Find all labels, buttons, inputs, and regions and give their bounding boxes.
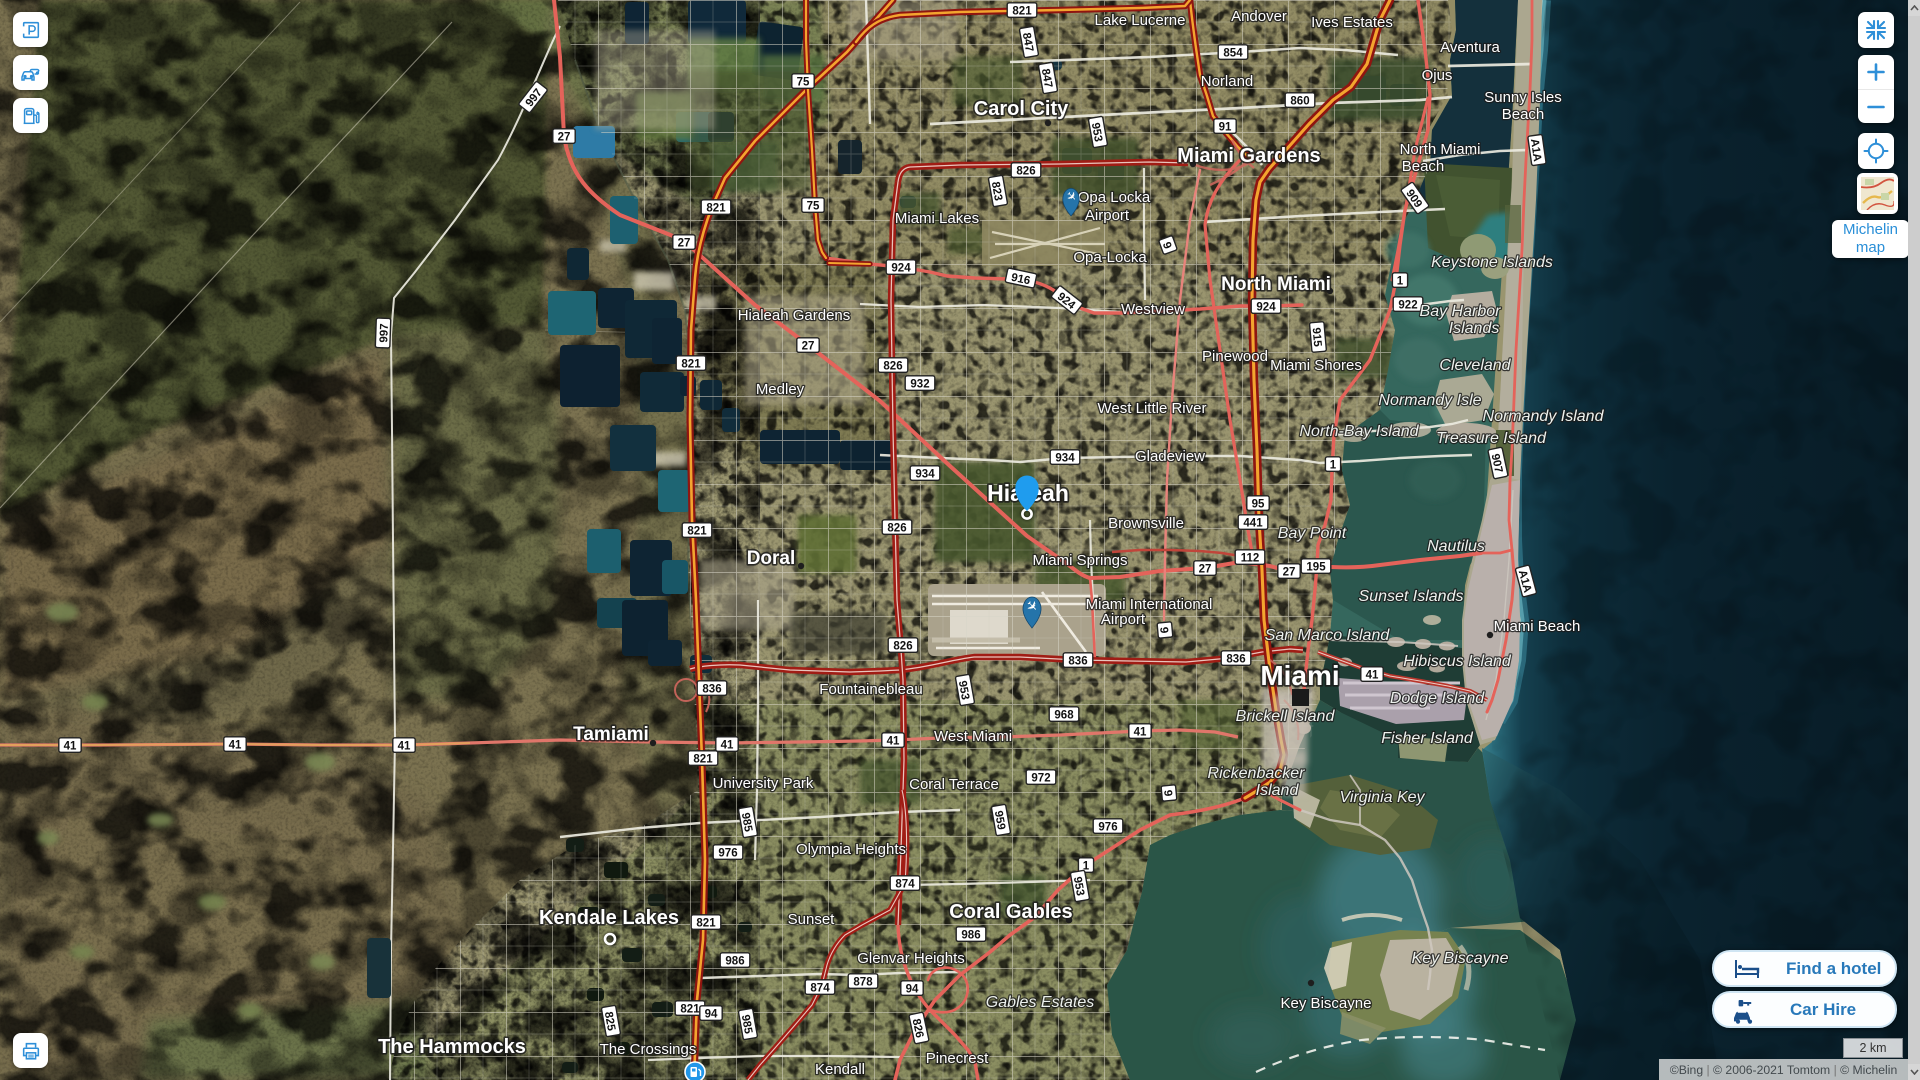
svg-text:41: 41 (721, 740, 734, 752)
svg-text:Fountainebleau: Fountainebleau (819, 681, 922, 698)
svg-text:Coral Gables: Coral Gables (949, 901, 1072, 923)
svg-text:Sunny Isles: Sunny Isles (1484, 89, 1562, 106)
svg-text:821: 821 (680, 1004, 700, 1016)
svg-text:95: 95 (1252, 499, 1265, 511)
svg-text:Gables Estates: Gables Estates (986, 994, 1095, 1011)
svg-text:821: 821 (706, 203, 726, 215)
svg-text:University Park: University Park (713, 775, 814, 792)
svg-text:924: 924 (891, 263, 911, 275)
svg-text:Sunset: Sunset (788, 911, 836, 928)
svg-text:West Miami: West Miami (934, 728, 1012, 745)
svg-text:Miami Shores: Miami Shores (1270, 357, 1362, 374)
svg-text:826: 826 (883, 361, 902, 373)
svg-text:Beach: Beach (1502, 106, 1545, 123)
svg-text:821: 821 (693, 754, 713, 766)
svg-text:Miami Lakes: Miami Lakes (895, 210, 979, 227)
svg-text:41: 41 (1366, 670, 1379, 682)
svg-text:Island: Island (1256, 782, 1300, 799)
svg-text:Tamiami: Tamiami (573, 724, 649, 745)
svg-text:Aventura: Aventura (1440, 39, 1500, 56)
svg-text:Medley: Medley (756, 381, 805, 398)
svg-text:976: 976 (1098, 822, 1117, 834)
svg-text:997: 997 (378, 323, 391, 343)
svg-text:976: 976 (718, 848, 737, 860)
svg-text:27: 27 (558, 132, 571, 144)
svg-text:Bay Harbor: Bay Harbor (1420, 303, 1502, 320)
svg-text:North Miami: North Miami (1221, 274, 1331, 295)
svg-text:968: 968 (1054, 710, 1074, 722)
svg-text:41: 41 (64, 741, 77, 753)
svg-text:Sunset Islands: Sunset Islands (1359, 588, 1464, 605)
svg-text:Lake Lucerne: Lake Lucerne (1095, 12, 1186, 29)
svg-text:27: 27 (678, 238, 691, 250)
svg-text:Normandy Island: Normandy Island (1483, 408, 1605, 425)
svg-text:Miami Beach: Miami Beach (1494, 618, 1581, 635)
svg-text:Miami Gardens: Miami Gardens (1177, 145, 1320, 167)
svg-text:Normandy Isle: Normandy Isle (1378, 392, 1481, 409)
svg-text:Treasure Island: Treasure Island (1436, 430, 1547, 447)
svg-text:27: 27 (1199, 564, 1212, 576)
svg-text:924: 924 (1256, 302, 1276, 314)
svg-text:41: 41 (229, 740, 242, 752)
svg-text:1: 1 (1330, 460, 1337, 472)
svg-text:Norland: Norland (1201, 73, 1254, 90)
svg-text:41: 41 (887, 736, 900, 748)
svg-text:Kendale Lakes: Kendale Lakes (539, 907, 679, 929)
svg-text:112: 112 (1241, 553, 1260, 565)
svg-text:San Marco Island: San Marco Island (1265, 627, 1391, 644)
svg-text:The Crossings: The Crossings (600, 1041, 697, 1058)
svg-text:27: 27 (1283, 567, 1296, 579)
svg-text:Olympia Heights: Olympia Heights (796, 841, 906, 858)
svg-text:Ojus: Ojus (1422, 67, 1453, 84)
svg-text:The Hammocks: The Hammocks (378, 1036, 526, 1058)
svg-text:94: 94 (705, 1009, 718, 1021)
svg-text:Gladeview: Gladeview (1135, 448, 1205, 465)
svg-text:Key Biscayne: Key Biscayne (1412, 950, 1509, 967)
svg-text:Nautilus: Nautilus (1427, 538, 1485, 555)
svg-text:North-Bay Island: North-Bay Island (1299, 423, 1419, 440)
svg-text:Pinewood: Pinewood (1202, 348, 1268, 365)
svg-text:9: 9 (1157, 626, 1170, 633)
svg-text:West Little River: West Little River (1098, 400, 1207, 417)
svg-text:Hialeah Gardens: Hialeah Gardens (738, 307, 851, 324)
svg-text:Cleveland: Cleveland (1439, 357, 1511, 374)
svg-text:Glenvar Heights: Glenvar Heights (857, 950, 965, 967)
svg-text:Miami Springs: Miami Springs (1032, 552, 1127, 569)
svg-text:Airport: Airport (1101, 611, 1146, 628)
svg-text:821: 821 (681, 359, 701, 371)
svg-text:826: 826 (1016, 166, 1035, 178)
svg-text:922: 922 (1398, 300, 1417, 312)
svg-text:826: 826 (893, 641, 912, 653)
svg-text:75: 75 (807, 201, 820, 213)
svg-text:Westview: Westview (1121, 301, 1185, 318)
svg-text:Ives Estates: Ives Estates (1311, 14, 1393, 31)
svg-text:Opa-Locka: Opa-Locka (1073, 249, 1147, 266)
svg-text:932: 932 (910, 379, 929, 391)
svg-text:986: 986 (961, 930, 980, 942)
svg-text:Dodge Island: Dodge Island (1390, 690, 1485, 707)
svg-text:North Miami: North Miami (1400, 141, 1481, 158)
svg-text:91: 91 (1219, 122, 1232, 134)
svg-text:27: 27 (802, 341, 815, 353)
svg-text:Brickell Island: Brickell Island (1236, 708, 1336, 725)
svg-text:972: 972 (1031, 773, 1050, 785)
svg-text:441: 441 (1243, 518, 1263, 530)
svg-text:Beach: Beach (1402, 158, 1445, 175)
svg-text:Doral: Doral (747, 548, 796, 569)
svg-text:Fisher Island: Fisher Island (1381, 730, 1474, 747)
svg-text:860: 860 (1290, 96, 1309, 108)
svg-text:Islands: Islands (1449, 320, 1500, 337)
svg-text:915: 915 (1310, 327, 1324, 348)
svg-text:821: 821 (1012, 6, 1032, 18)
svg-text:41: 41 (398, 741, 411, 753)
svg-text:94: 94 (906, 984, 919, 996)
svg-text:Coral Terrace: Coral Terrace (909, 776, 999, 793)
svg-text:Carol City: Carol City (974, 98, 1069, 120)
svg-text:986: 986 (725, 956, 744, 968)
svg-text:195: 195 (1306, 562, 1326, 574)
svg-text:836: 836 (702, 684, 721, 696)
svg-text:Bay Point: Bay Point (1278, 525, 1347, 542)
svg-text:836: 836 (1226, 654, 1245, 666)
svg-text:Opa Locka: Opa Locka (1078, 189, 1151, 206)
svg-text:874: 874 (810, 983, 830, 995)
svg-text:854: 854 (1223, 48, 1243, 60)
svg-text:Rickenbacker: Rickenbacker (1208, 765, 1306, 782)
svg-text:Pinecrest: Pinecrest (926, 1050, 989, 1067)
svg-text:Airport: Airport (1085, 207, 1130, 224)
svg-text:Keystone Islands: Keystone Islands (1431, 254, 1553, 271)
svg-text:Miami: Miami (1260, 660, 1339, 691)
svg-text:934: 934 (1055, 453, 1075, 465)
svg-text:Andover: Andover (1231, 8, 1287, 25)
svg-text:Hibiscus Island: Hibiscus Island (1403, 653, 1512, 670)
svg-text:1: 1 (1397, 276, 1404, 288)
svg-text:Kendall: Kendall (815, 1061, 865, 1078)
svg-text:9: 9 (1161, 789, 1174, 796)
svg-text:934: 934 (915, 469, 935, 481)
svg-text:874: 874 (895, 879, 915, 891)
svg-text:41: 41 (1134, 727, 1147, 739)
svg-text:75: 75 (797, 77, 810, 89)
svg-text:826: 826 (887, 523, 906, 535)
svg-text:878: 878 (853, 977, 873, 989)
svg-text:Key Biscayne: Key Biscayne (1281, 995, 1372, 1012)
svg-text:Brownsville: Brownsville (1108, 515, 1184, 532)
svg-text:821: 821 (687, 526, 707, 538)
svg-text:836: 836 (1068, 656, 1087, 668)
svg-text:Virginia Key: Virginia Key (1339, 789, 1425, 806)
svg-text:821: 821 (696, 918, 716, 930)
